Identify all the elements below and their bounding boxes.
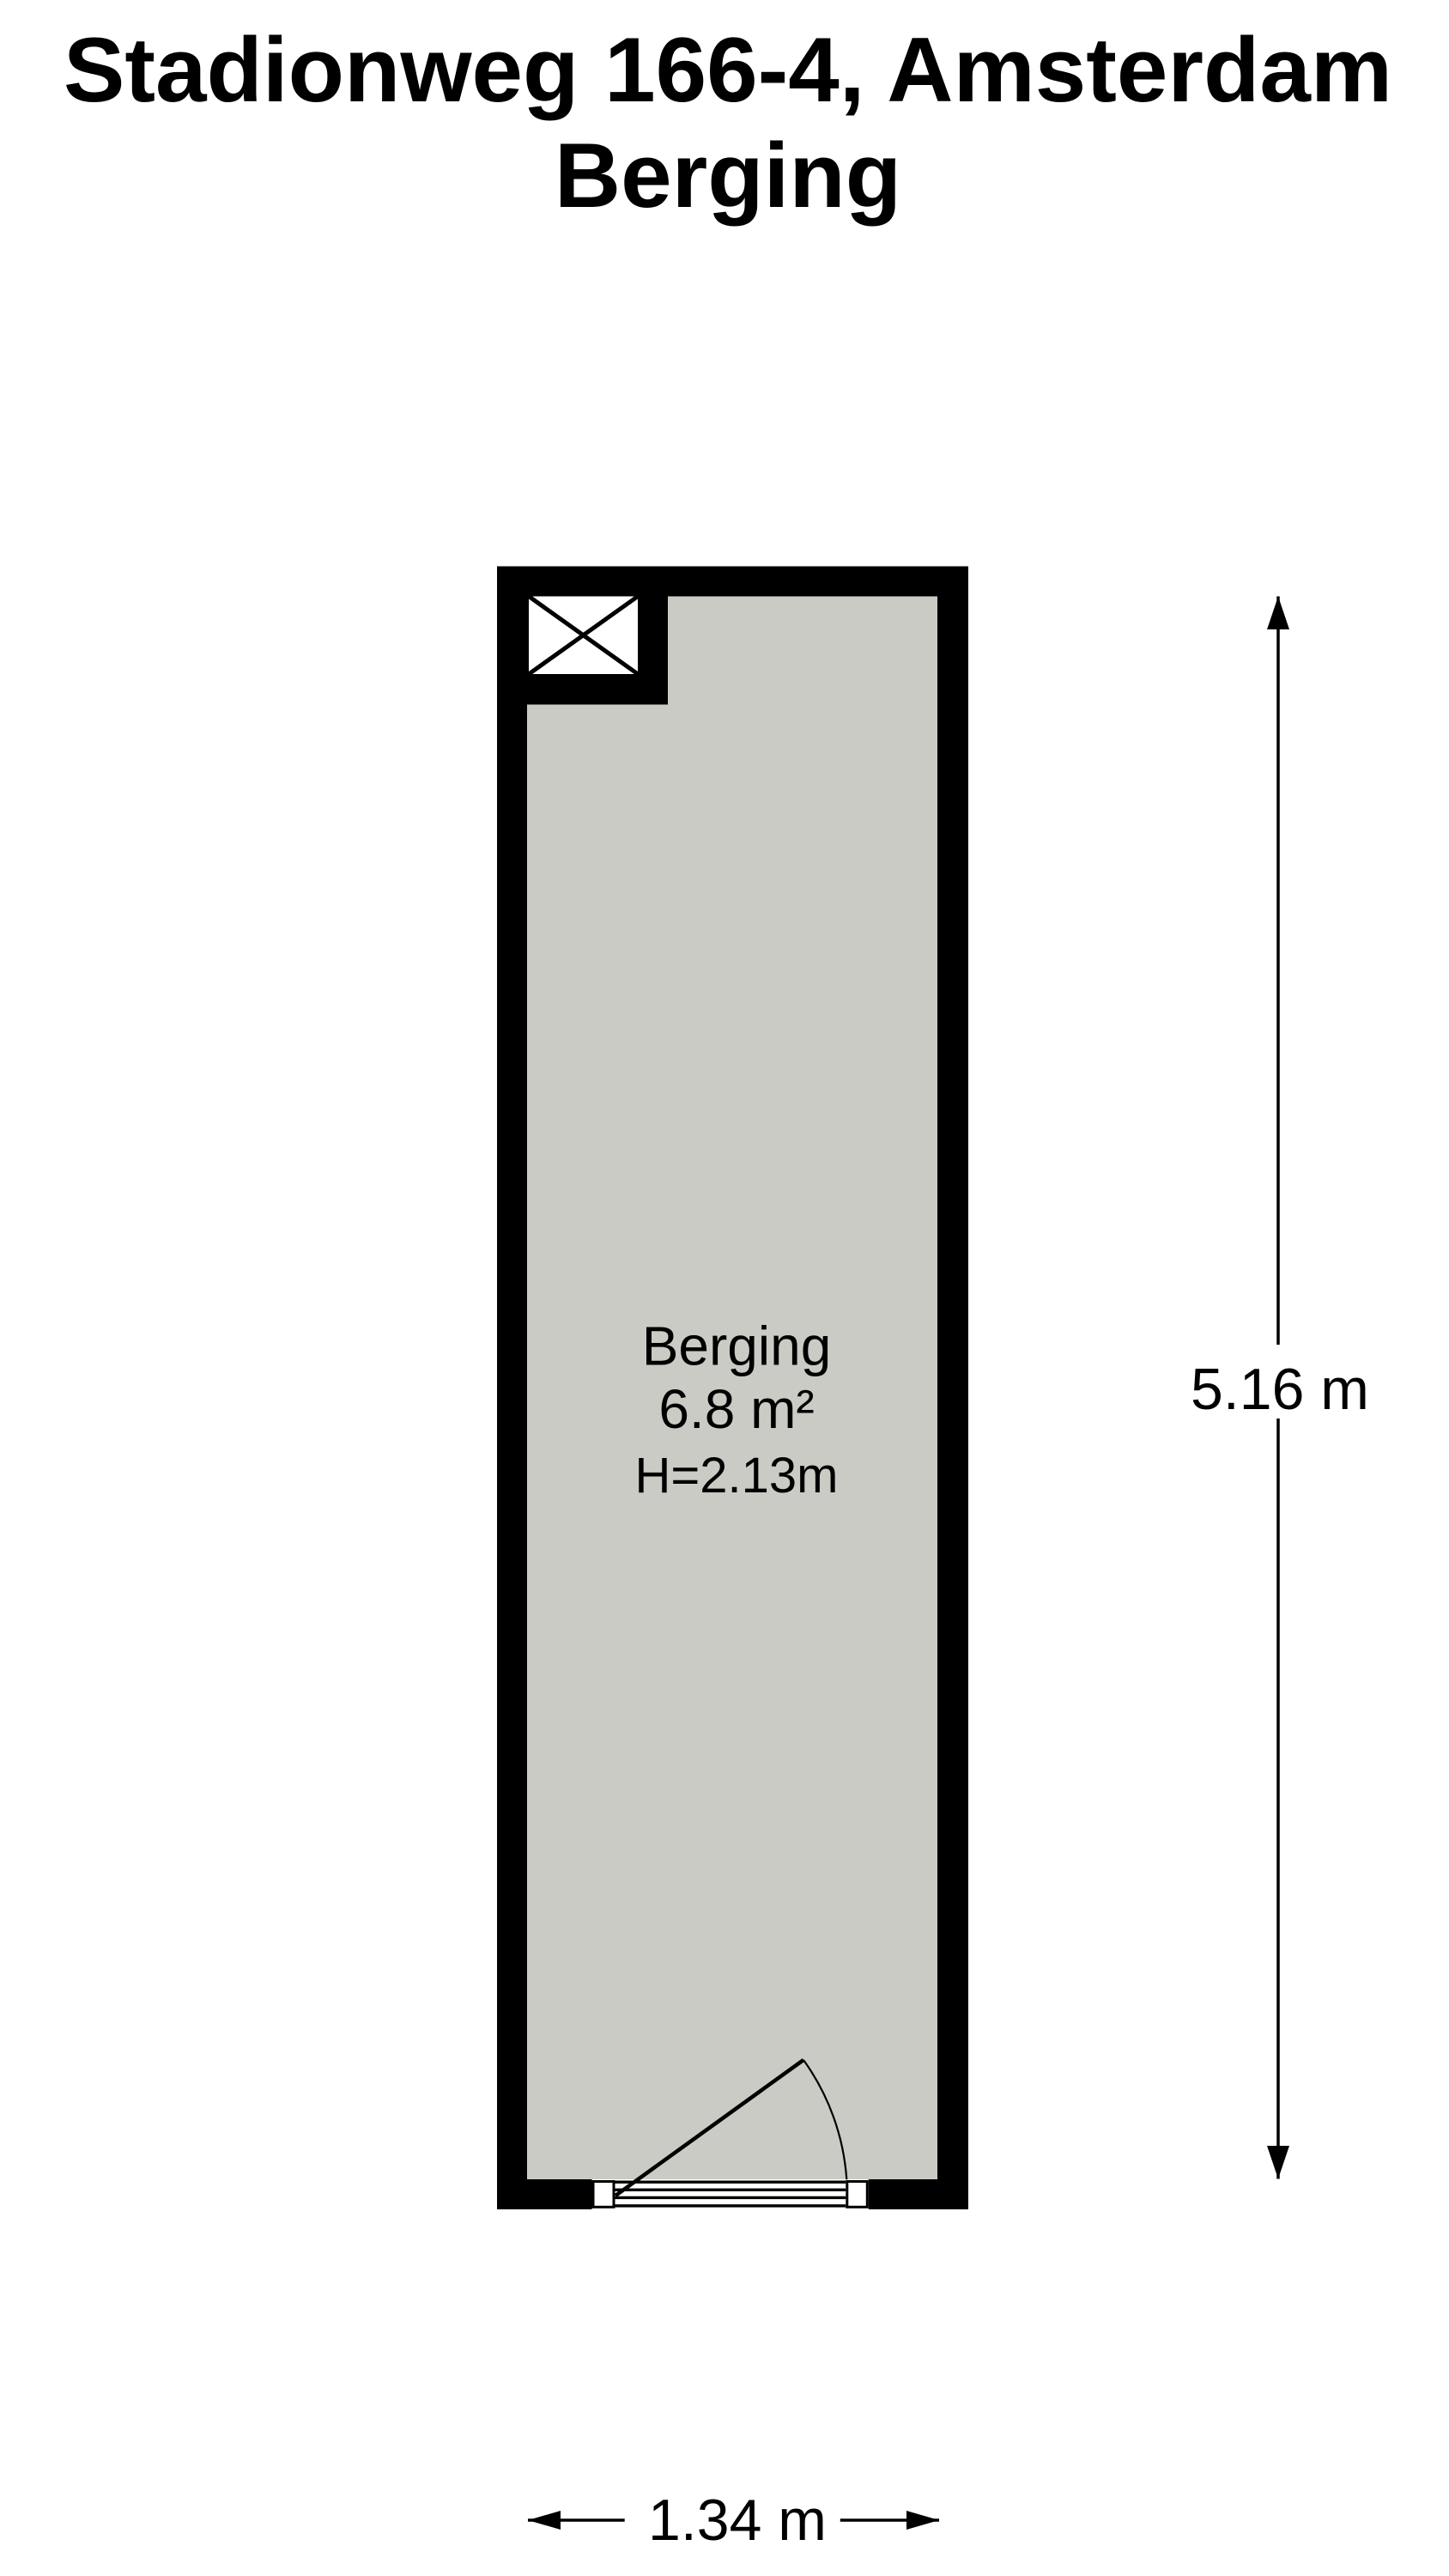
- svg-text:1.34 m: 1.34 m: [648, 2488, 827, 2553]
- svg-text:H=2.13m: H=2.13m: [635, 1448, 839, 1504]
- svg-text:Berging: Berging: [642, 1315, 832, 1377]
- svg-text:5.16 m: 5.16 m: [1191, 1357, 1369, 1422]
- svg-text:Berging: Berging: [555, 124, 901, 227]
- svg-text:6.8 m²: 6.8 m²: [658, 1378, 814, 1440]
- svg-text:Stadionweg 166-4, Amsterdam: Stadionweg 166-4, Amsterdam: [64, 18, 1392, 121]
